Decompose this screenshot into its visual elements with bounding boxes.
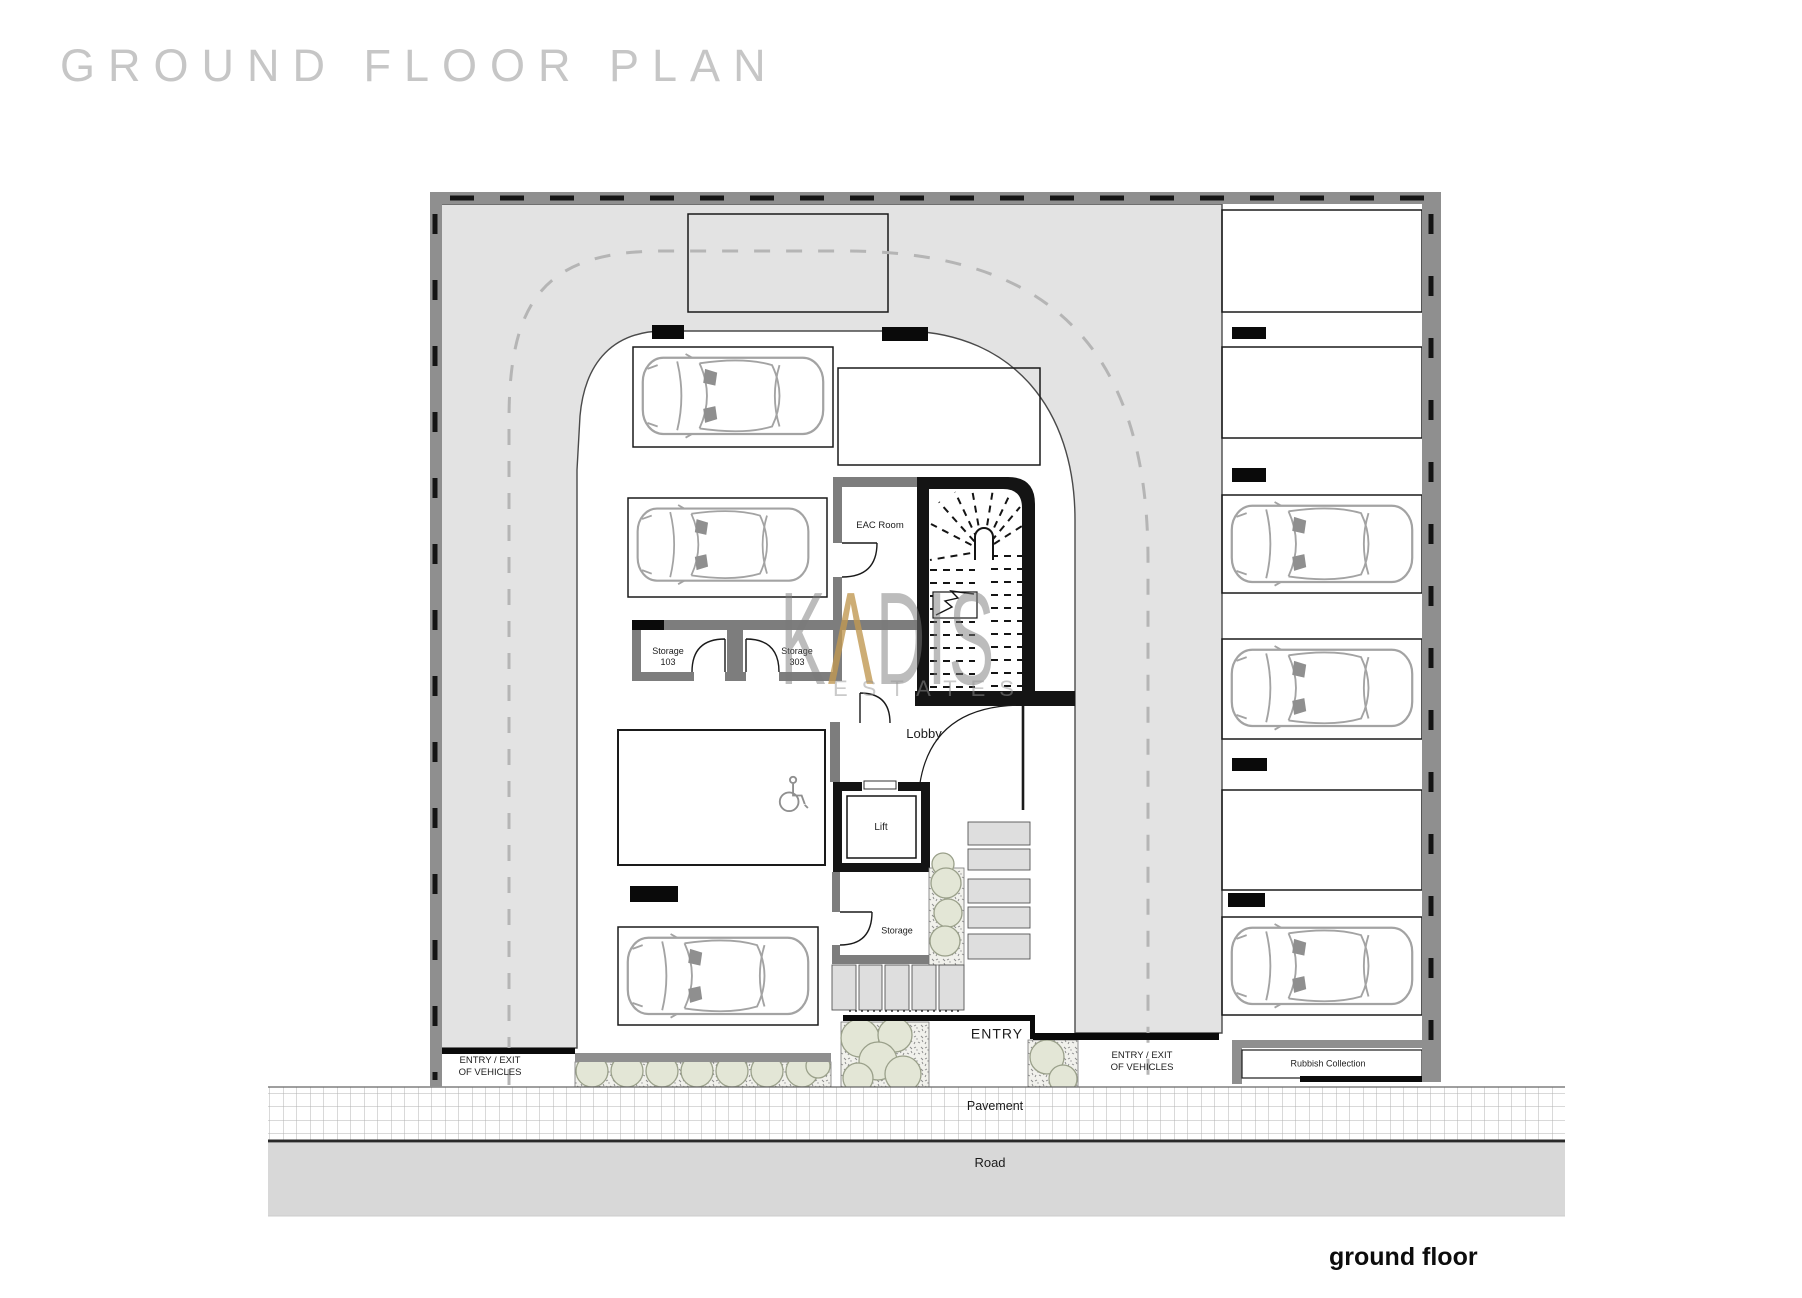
bush-icon [930,926,960,956]
ground-floor-plan-page: GROUND FLOOR PLAN EAC Room Storage 103 S… [0,0,1802,1298]
entry-door-swing [918,705,1023,810]
parking-bay [1222,347,1422,438]
car-icon [1232,502,1412,586]
room-label-storage-103: Storage 103 [652,646,684,669]
accessible-parking-bay [618,730,825,865]
small-storage-walls [832,872,932,964]
parking-bay [618,927,818,1025]
vehicle-entry-right-line1: ENTRY / EXIT [1111,1050,1174,1062]
car-icon [1232,924,1412,1008]
watermark-subtitle: ESTATES [833,676,1028,702]
room-label-rubbish: Rubbish Collection [1290,1058,1365,1069]
floor-name-label: ground floor [1329,1243,1478,1272]
pavement-label: Pavement [967,1099,1023,1115]
vehicle-entry-right-label: ENTRY / EXIT OF VEHICLES [1111,1050,1174,1074]
parking-bay [1222,495,1422,593]
bush-icon [934,899,962,927]
car-icon [1232,646,1412,730]
vehicle-entry-left-line1: ENTRY / EXIT [459,1055,522,1067]
parking-bay [1222,917,1422,1015]
room-label-lift: Lift [874,822,887,835]
wheel-stops-right [1228,327,1267,907]
bush-icon [931,868,961,898]
car-icon [643,354,823,438]
room-label-storage-small: Storage [881,925,913,936]
vehicle-entry-left-line2: OF VEHICLES [459,1067,522,1079]
pavement [268,1087,1565,1141]
room-label-lobby: Lobby [906,726,941,742]
vehicle-entry-right-line2: OF VEHICLES [1111,1062,1174,1074]
parking-bay [838,368,1040,465]
room-label-eac: EAC Room [856,520,904,532]
parking-bay [1222,210,1422,312]
road [268,1143,1565,1216]
vehicle-entry-left-label: ENTRY / EXIT OF VEHICLES [459,1055,522,1079]
storage-103-number: 103 [652,657,684,668]
car-icon [628,934,808,1018]
watermark-k: K [780,565,828,712]
page-title: GROUND FLOOR PLAN [60,40,779,92]
road-label: Road [974,1155,1005,1171]
entry-label: ENTRY [971,1025,1023,1043]
parking-bay [1222,790,1422,890]
storage-103-name: Storage [652,646,684,657]
storage-door [840,912,872,945]
